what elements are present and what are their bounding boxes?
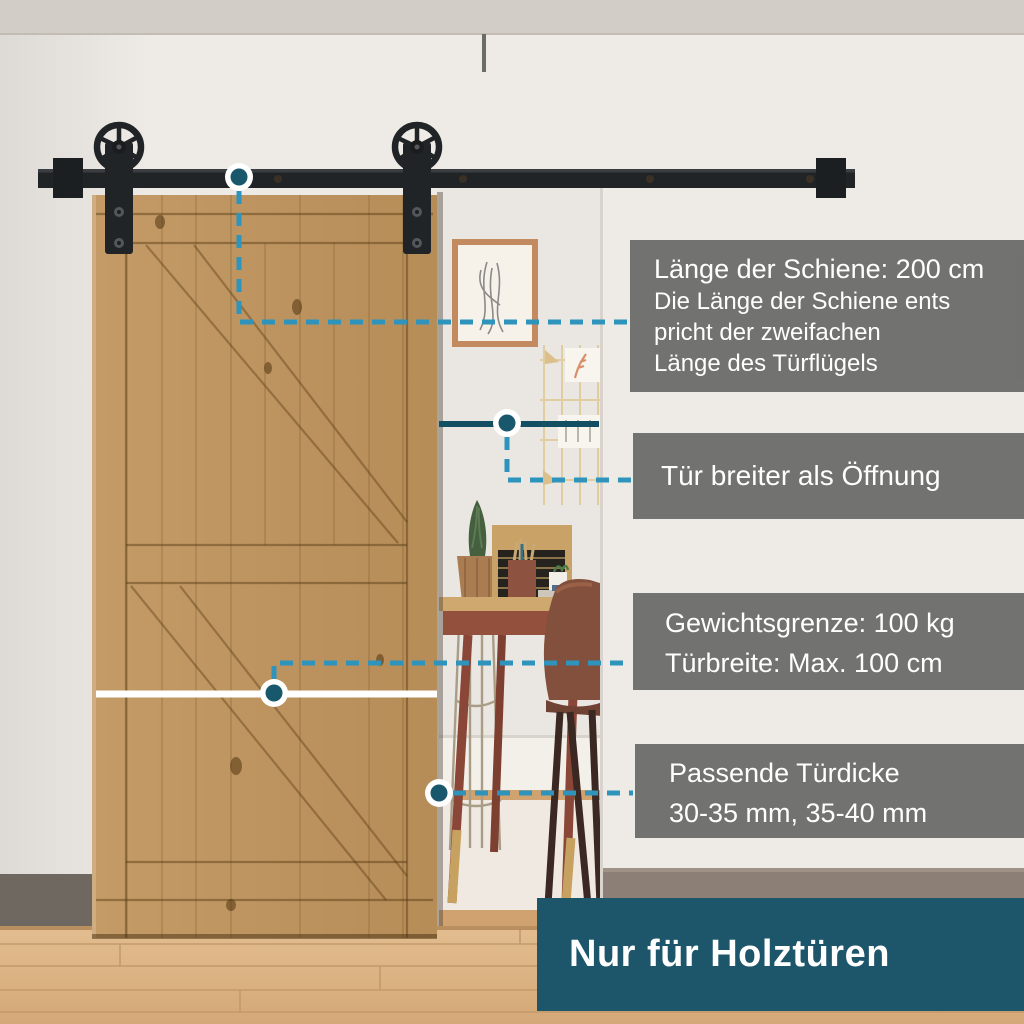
hanging-rod	[482, 34, 486, 72]
banner-wood-doors-only: Nur für Holztüren	[537, 898, 1024, 1011]
note-door-thickness: Passende Türdicke 30-35 mm, 35-40 mm	[635, 744, 1024, 838]
callout-dot-rail	[225, 163, 253, 191]
product-infographic: Länge der Schiene: 200 cm Die Länge der …	[0, 0, 1024, 1024]
note-door-wider-text: Tür breiter als Öffnung	[661, 460, 941, 492]
ceiling	[0, 0, 1024, 34]
barn-door	[92, 195, 437, 939]
rail-end-stop-right	[816, 158, 846, 198]
callout-dot-width	[260, 679, 288, 707]
note-thickness-line2: 30-35 mm, 35-40 mm	[669, 793, 1024, 833]
baseboard-left	[0, 874, 92, 928]
note-rail-length: Länge der Schiene: 200 cm Die Länge der …	[630, 240, 1024, 392]
baseboard-right-top	[603, 868, 1024, 872]
doorway-jamb	[600, 188, 603, 935]
banner-wood-text: Nur für Holztüren	[569, 933, 890, 976]
note-thickness-line1: Passende Türdicke	[669, 753, 1024, 793]
doorway-opening	[430, 188, 615, 935]
note-weight-line1: Gewichtsgrenze: 100 kg	[665, 603, 1024, 643]
door-edge-shadow	[437, 192, 443, 935]
note-rail-length-title: Länge der Schiene: 200 cm	[654, 252, 1016, 286]
baseboard-right	[603, 868, 1024, 898]
note-rail-length-line2: pricht der zweifachen	[654, 317, 1016, 348]
note-weight-limit: Gewichtsgrenze: 100 kg Türbreite: Max. 1…	[633, 593, 1024, 690]
rail-end-stop-left	[53, 158, 83, 198]
door-bottom-shadow	[92, 934, 437, 939]
callout-dot-thickness	[425, 779, 453, 807]
framed-art	[455, 242, 535, 344]
rail-highlight	[38, 169, 855, 173]
note-rail-length-line3: Länge des Türflügels	[654, 348, 1016, 379]
door-left-highlight	[92, 195, 96, 938]
note-weight-line2: Türbreite: Max. 100 cm	[665, 643, 1024, 683]
note-rail-length-line1: Die Länge der Schiene ents	[654, 286, 1016, 317]
ceiling-edge	[0, 33, 1024, 35]
callout-dot-opening	[493, 409, 521, 437]
note-door-wider: Tür breiter als Öffnung	[633, 433, 1024, 519]
